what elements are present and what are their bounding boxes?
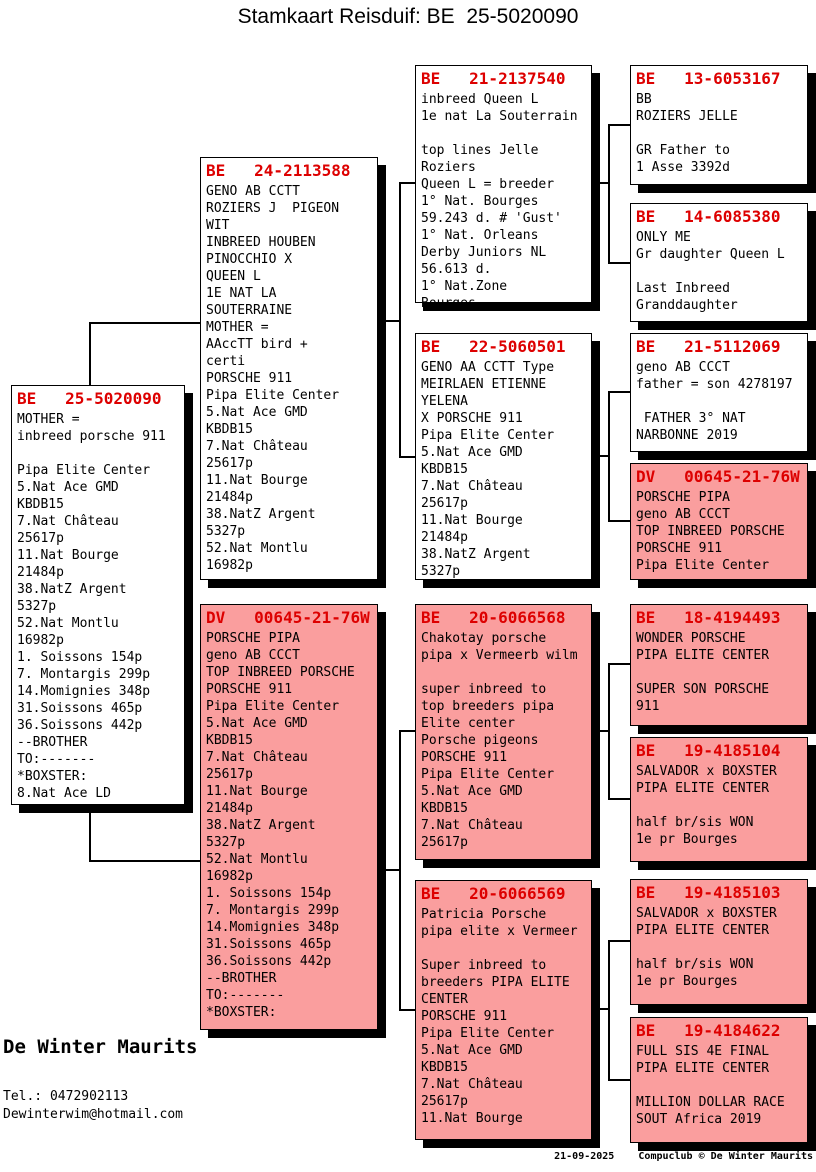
ring-number: BE 20-6066569 xyxy=(416,881,591,906)
ring-number: BE 20-6066568 xyxy=(416,605,591,630)
pedigree-text: GENO AB CCTT ROZIERS J PIGEON WIT INBREE… xyxy=(201,183,377,574)
pedigree-text: GENO AA CCTT Type MEIRLAEN ETIENNE YELEN… xyxy=(416,359,591,580)
connector-line xyxy=(89,322,91,385)
pedigree-box-ff: BE 21-2137540 inbreed Queen L 1e nat La … xyxy=(415,65,592,303)
pedigree-text: geno AB CCCT father = son 4278197 FATHER… xyxy=(631,359,807,444)
pedigree-box-mmm: BE 19-4184622 FULL SIS 4E FINAL PIPA ELI… xyxy=(630,1017,808,1143)
pedigree-text: PORSCHE PIPA geno AB CCCT TOP INBREED PO… xyxy=(631,489,807,574)
connector-line xyxy=(378,320,401,322)
connector-line xyxy=(89,322,201,324)
pedigree-text: MOTHER = inbreed porsche 911 Pipa Elite … xyxy=(12,411,184,802)
ring-number: BE 25-5020090 xyxy=(12,386,184,411)
pedigree-box-fm: BE 22-5060501 GENO AA CCTT Type MEIRLAEN… xyxy=(415,333,592,580)
pedigree-box-mmf: BE 19-4185103 SALVADOR x BOXSTER PIPA EL… xyxy=(630,879,808,1005)
connector-line xyxy=(399,1009,416,1011)
ring-number: BE 24-2113588 xyxy=(201,158,377,183)
connector-line xyxy=(608,520,631,522)
pedigree-text: SALVADOR x BOXSTER PIPA ELITE CENTER hal… xyxy=(631,763,807,848)
pedigree-box-subject: BE 25-5020090 MOTHER = inbreed porsche 9… xyxy=(11,385,185,805)
connector-line xyxy=(608,391,610,522)
pedigree-box-mm: BE 20-6066569 Patricia Porsche pipa elit… xyxy=(415,880,592,1140)
pedigree-text: FULL SIS 4E FINAL PIPA ELITE CENTER MILL… xyxy=(631,1043,807,1128)
connector-line xyxy=(608,663,631,665)
connector-line xyxy=(608,262,631,264)
pedigree-text: Patricia Porsche pipa elite x Vermeer Su… xyxy=(416,906,591,1127)
ring-number: DV 00645-21-76W xyxy=(631,464,807,489)
pedigree-text: SALVADOR x BOXSTER PIPA ELITE CENTER hal… xyxy=(631,905,807,990)
ring-number: BE 19-4185104 xyxy=(631,738,807,763)
breeder-email: Dewinterwim@hotmail.com xyxy=(3,1107,183,1122)
connector-line xyxy=(608,124,631,126)
connector-line xyxy=(608,940,610,1081)
connector-line xyxy=(608,663,610,800)
connector-line xyxy=(399,182,401,458)
connector-line xyxy=(399,456,416,458)
pedigree-box-mf: BE 20-6066568 Chakotay porsche pipa x Ve… xyxy=(415,604,592,860)
pedigree-box-mother: DV 00645-21-76W PORSCHE PIPA geno AB CCC… xyxy=(200,604,378,1030)
ring-number: BE 18-4194493 xyxy=(631,605,807,630)
ring-number: BE 22-5060501 xyxy=(416,334,591,359)
pedigree-box-ffm: BE 14-6085380 ONLY ME Gr daughter Queen … xyxy=(630,203,808,322)
connector-line xyxy=(399,182,416,184)
connector-line xyxy=(608,798,631,800)
ring-number: BE 14-6085380 xyxy=(631,204,807,229)
connector-line xyxy=(89,804,91,862)
pedigree-text: Chakotay porsche pipa x Vermeerb wilm su… xyxy=(416,630,591,851)
pedigree-text: ONLY ME Gr daughter Queen L Last Inbreed… xyxy=(631,229,807,314)
ring-number: BE 21-2137540 xyxy=(416,66,591,91)
breeder-name: De Winter Maurits xyxy=(3,1036,197,1058)
connector-line xyxy=(608,940,631,942)
footer-credit: 21-09-2025 Compuclub © De Winter Maurits xyxy=(554,1151,813,1162)
ring-number: DV 00645-21-76W xyxy=(201,605,377,630)
breeder-phone: Tel.: 0472902113 xyxy=(3,1089,128,1104)
connector-line xyxy=(399,730,416,732)
page-title: Stamkaart Reisduif: BE 25-5020090 xyxy=(0,5,816,29)
pedigree-box-fff: BE 13-6053167 BB ROZIERS JELLE GR Father… xyxy=(630,65,808,185)
connector-line xyxy=(378,869,401,871)
pedigree-box-mfm: BE 19-4185104 SALVADOR x BOXSTER PIPA EL… xyxy=(630,737,808,862)
ring-number: BE 19-4185103 xyxy=(631,880,807,905)
pedigree-text: inbreed Queen L 1e nat La Souterrain top… xyxy=(416,91,591,312)
connector-line xyxy=(608,1079,631,1081)
pedigree-box-mff: BE 18-4194493 WONDER PORSCHE PIPA ELITE … xyxy=(630,604,808,726)
pedigree-text: PORSCHE PIPA geno AB CCCT TOP INBREED PO… xyxy=(201,630,377,1021)
connector-line xyxy=(399,730,401,1011)
pedigree-box-fmf: BE 21-5112069 geno AB CCCT father = son … xyxy=(630,333,808,452)
pedigree-text: BB ROZIERS JELLE GR Father to 1 Asse 339… xyxy=(631,91,807,176)
ring-number: BE 13-6053167 xyxy=(631,66,807,91)
ring-number: BE 19-4184622 xyxy=(631,1018,807,1043)
connector-line xyxy=(608,124,610,264)
connector-line xyxy=(89,860,201,862)
connector-line xyxy=(608,391,631,393)
pedigree-box-fmm: DV 00645-21-76W PORSCHE PIPA geno AB CCC… xyxy=(630,463,808,580)
pedigree-card: Stamkaart Reisduif: BE 25-5020090 BE 25-… xyxy=(0,0,816,1172)
pedigree-text: WONDER PORSCHE PIPA ELITE CENTER SUPER S… xyxy=(631,630,807,715)
pedigree-box-father: BE 24-2113588 GENO AB CCTT ROZIERS J PIG… xyxy=(200,157,378,580)
ring-number: BE 21-5112069 xyxy=(631,334,807,359)
